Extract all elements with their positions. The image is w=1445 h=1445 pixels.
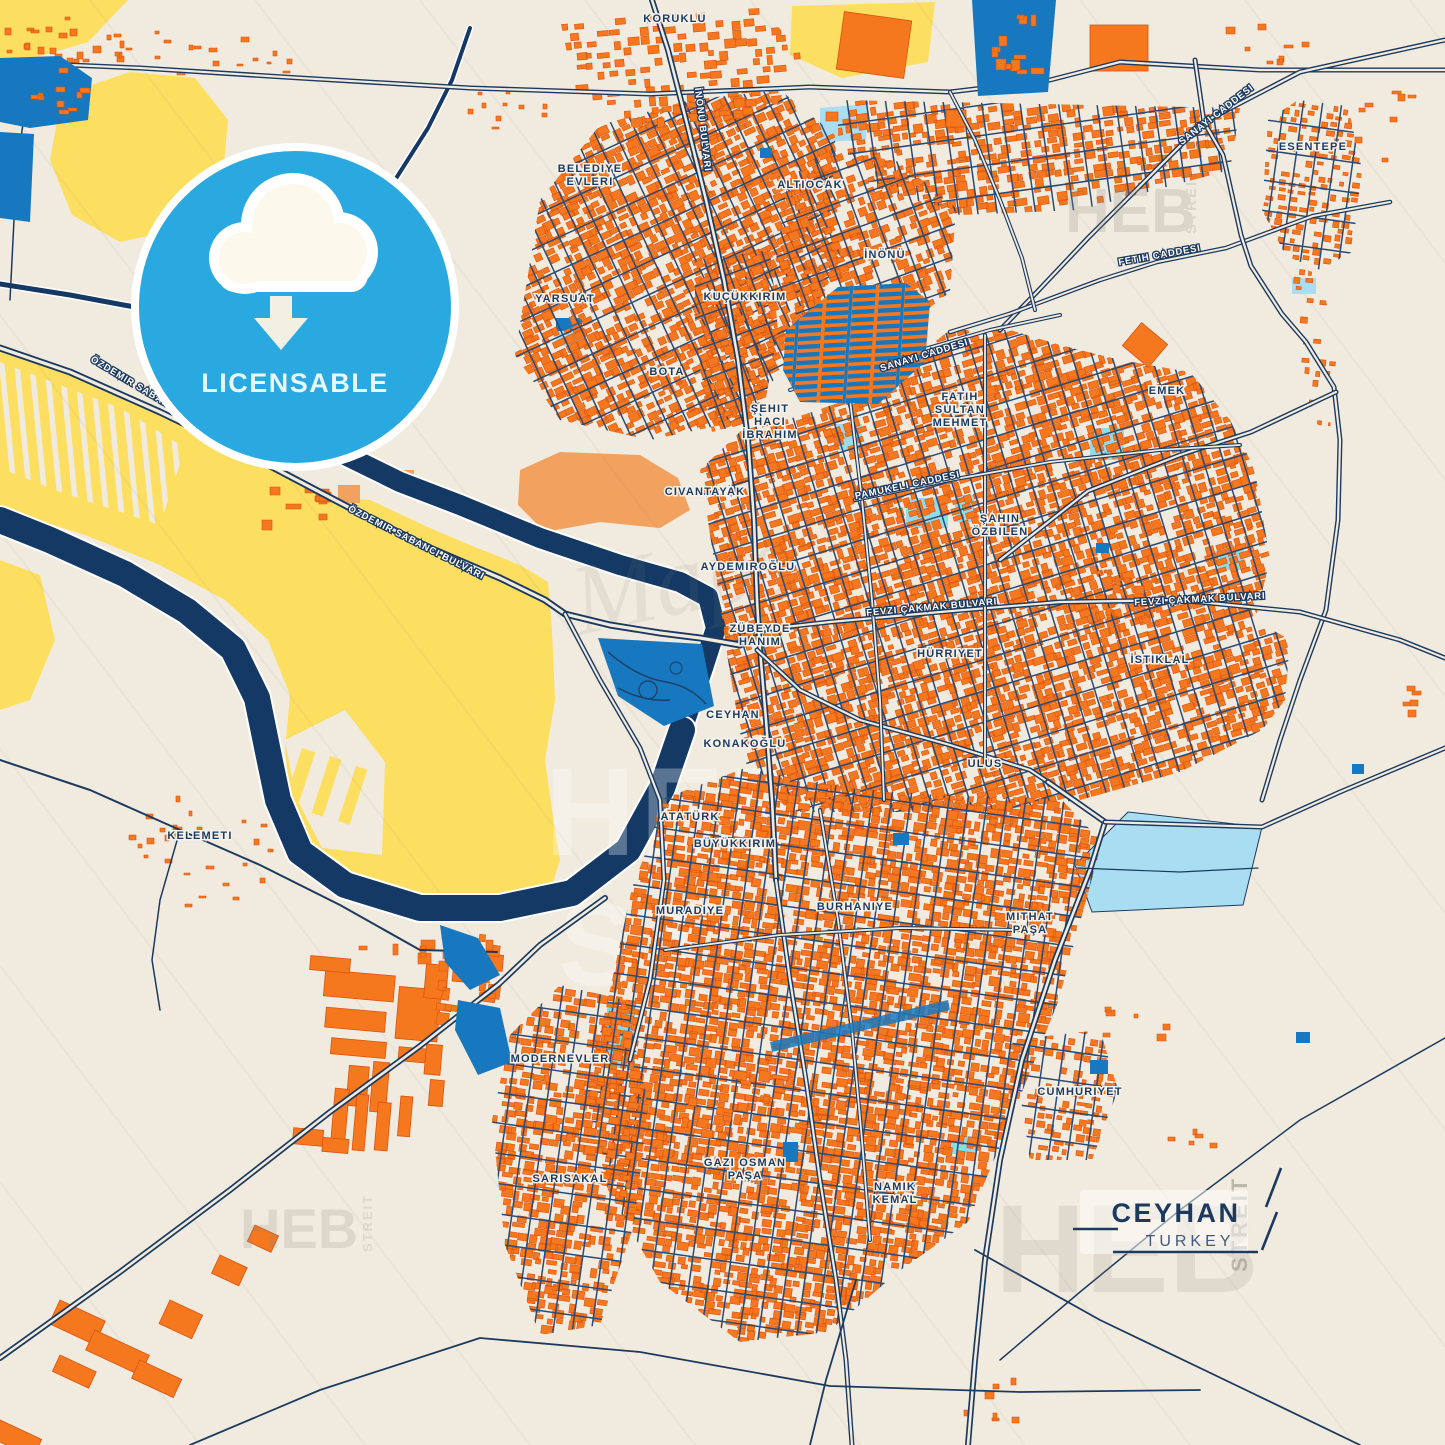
- svg-text:HEB: HEB: [1065, 177, 1196, 246]
- svg-text:CIVANTAYAK: CIVANTAYAK: [665, 486, 745, 498]
- svg-text:CUMHURIYET: CUMHURIYET: [1037, 1086, 1122, 1098]
- svg-text:İNÖNÜ: İNÖNÜ: [864, 248, 905, 261]
- svg-text:ATATÜRK: ATATÜRK: [660, 810, 719, 823]
- svg-text:MITHAT: MITHAT: [1006, 911, 1054, 923]
- svg-text:HÜRRIYET: HÜRRIYET: [917, 647, 983, 660]
- svg-text:KONAKOĞLU: KONAKOĞLU: [704, 737, 787, 750]
- svg-text:HANIM: HANIM: [739, 636, 781, 648]
- svg-text:EMEK: EMEK: [1149, 385, 1186, 397]
- svg-text:NAMIK: NAMIK: [874, 1181, 916, 1193]
- svg-text:AYDEMIROĞLU: AYDEMIROĞLU: [701, 560, 796, 573]
- svg-text:CEYHAN: CEYHAN: [706, 709, 760, 721]
- svg-text:GAZI OSMAN: GAZI OSMAN: [704, 1157, 786, 1169]
- svg-text:ZÜBEYDE: ZÜBEYDE: [730, 622, 791, 635]
- svg-text:HEB: HEB: [240, 1197, 358, 1260]
- svg-text:EVLERI: EVLERI: [567, 176, 614, 188]
- svg-text:CEYHAN: CEYHAN: [1111, 1198, 1240, 1228]
- svg-text:MODERNEVLER: MODERNEVLER: [511, 1053, 610, 1065]
- svg-text:PAŞA: PAŞA: [728, 1170, 763, 1182]
- svg-text:BOTA: BOTA: [649, 366, 684, 378]
- svg-text:STREIT: STREIT: [1183, 169, 1200, 234]
- svg-text:YARSUAT: YARSUAT: [535, 293, 595, 305]
- svg-text:ESENTEPE: ESENTEPE: [1279, 141, 1347, 153]
- svg-text:SULTAN: SULTAN: [935, 404, 985, 416]
- svg-text:KORUKLU: KORUKLU: [643, 13, 706, 25]
- svg-text:İBRAHIM: İBRAHIM: [742, 428, 797, 441]
- svg-text:MURADIYE: MURADIYE: [656, 905, 724, 917]
- svg-text:LICENSABLE: LICENSABLE: [201, 368, 389, 398]
- svg-text:KELEMETI: KELEMETI: [167, 830, 232, 842]
- svg-text:ŞEHIT: ŞEHIT: [751, 403, 789, 415]
- svg-text:BELEDIYE: BELEDIYE: [558, 163, 623, 175]
- svg-text:ŞAHIN: ŞAHIN: [980, 513, 1020, 525]
- svg-text:SARISAKAL: SARISAKAL: [533, 1173, 608, 1185]
- svg-text:ULUS: ULUS: [968, 758, 1003, 770]
- svg-text:TURKEY: TURKEY: [1146, 1233, 1235, 1250]
- svg-text:KUÇÜKKIRIM: KUÇÜKKIRIM: [704, 290, 787, 303]
- svg-text:İSTIKLAL: İSTIKLAL: [1130, 653, 1189, 666]
- svg-text:PAŞA: PAŞA: [1013, 924, 1048, 936]
- svg-text:BÜYÜKKIRIM: BÜYÜKKIRIM: [694, 837, 776, 850]
- svg-text:KEMAL: KEMAL: [872, 1194, 917, 1206]
- svg-text:STREIT: STREIT: [360, 1194, 375, 1252]
- svg-text:HACI: HACI: [754, 416, 786, 428]
- svg-text:ALTIOCAK: ALTIOCAK: [777, 179, 843, 191]
- svg-text:BURHANIYE: BURHANIYE: [817, 901, 893, 913]
- svg-text:FATIH: FATIH: [942, 391, 979, 403]
- svg-text:MEHMET: MEHMET: [933, 417, 988, 429]
- svg-text:ÖZBILEN: ÖZBILEN: [972, 525, 1029, 538]
